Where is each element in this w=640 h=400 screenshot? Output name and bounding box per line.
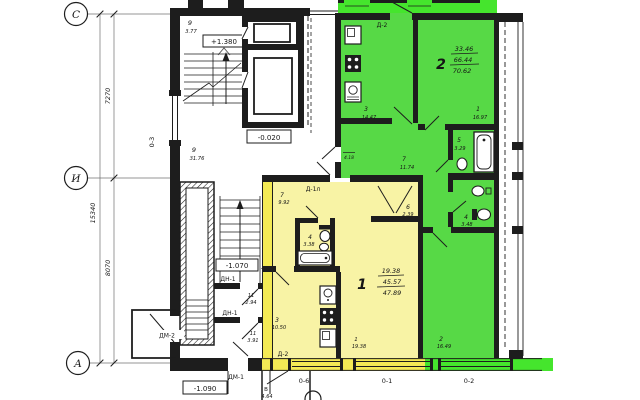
grid-label-a: А: [73, 358, 82, 370]
grid-label-i: И: [70, 173, 81, 185]
window-label-o2: 0-2: [464, 377, 475, 385]
apt2-bed-number: 2: [439, 336, 443, 343]
washbasin-icon: [320, 243, 329, 251]
apt1-balcony-area: 4.64: [261, 394, 272, 400]
elevator-shafts: [242, 16, 311, 133]
wc-sink-icon: [472, 186, 484, 196]
floor-plan-canvas: С И А 15340 7270 8070 0-3 9 3.77 +1.380: [0, 0, 640, 400]
window-label-o1: 0-1: [382, 377, 393, 385]
stair-room-area: 3.77: [185, 29, 197, 35]
stove-icon: [320, 308, 336, 325]
window-label-o6: 0-6: [299, 377, 310, 385]
apt2-bed-area: 16.49: [437, 344, 451, 350]
apt2-bath-area: 3.29: [454, 146, 465, 152]
apt2-loggia-area: 4.18: [344, 155, 354, 161]
toilet-icon: [319, 225, 331, 230]
apt1-hall-number: 7: [280, 192, 284, 199]
apt1-kitchen-fixtures: [320, 286, 336, 347]
apt2-living-area: 33.46: [455, 45, 474, 53]
apt1-living-area: 19.38: [382, 267, 401, 275]
door-label-dn1-upper: ДН-1: [220, 276, 235, 283]
door-label-dm1: ДМ-1: [228, 374, 244, 381]
apt1-hall-area: 9.92: [278, 200, 289, 206]
corridor-number: 9: [192, 146, 196, 154]
apt1-bath-number: 4: [308, 234, 312, 241]
sink-icon: [345, 82, 361, 102]
apt2-living-number: 1: [476, 106, 480, 113]
apt2-total-area: 66.44: [454, 56, 473, 64]
dim-total: 15340: [89, 203, 97, 224]
stair-room-number: 9: [188, 19, 192, 27]
washbasin-icon: [457, 158, 467, 170]
apt1-total-area: 45.57: [383, 278, 402, 286]
apt2-wc-number: 4: [464, 214, 468, 221]
tambour2-number: 11: [250, 331, 257, 337]
door-label-dm2: ДМ-2: [159, 333, 175, 340]
apt2-kitchen-area: 14.47: [362, 115, 377, 121]
apt1-room-number: 1: [354, 337, 358, 343]
window-label-o3: 0-3: [148, 137, 156, 148]
apt2-hall-area: 11.74: [400, 165, 414, 171]
toilet-icon: [472, 209, 477, 220]
level-upper-landing: +1.380: [211, 38, 237, 46]
apt1-kitchen-number: 3: [275, 317, 279, 324]
tambour1-number: 11: [248, 293, 255, 299]
grid-label-c: С: [72, 9, 80, 21]
apt2-overall-area: 70.62: [453, 67, 472, 75]
tambour2-area: 3.91: [247, 338, 258, 344]
elevator-cab-2: [254, 58, 292, 114]
apt2-wc-area: 3.48: [461, 222, 472, 228]
apt2-kitchen-number: 3: [364, 106, 368, 113]
level-exit: -1.090: [194, 385, 217, 393]
dim-lower: 8070: [104, 260, 112, 277]
apt1-kitchen-area: 10.50: [272, 325, 286, 331]
apt2-living-room-area: 16.97: [473, 115, 488, 121]
apt1-room-area: 19.38: [352, 344, 366, 350]
apt1-overall-area: 47.89: [383, 289, 402, 297]
level-lower-landing: -1.070: [226, 262, 249, 270]
apt1-balcony-label: В: [264, 387, 268, 393]
door-label-d2-bottom: Д-2: [278, 351, 289, 358]
apt2-bath-number: 5: [457, 137, 461, 144]
stove-icon: [345, 55, 361, 72]
door-label-d1l: Д-1л: [306, 186, 321, 193]
apt1-number: 1: [357, 277, 367, 293]
dim-upper: 7270: [104, 88, 112, 105]
apt1-bath-area: 3.38: [303, 242, 314, 248]
tambour1-area: 2.94: [245, 300, 256, 306]
door-label-d2-top: Д-2: [377, 22, 388, 29]
apt2-hall-number: 7: [402, 156, 406, 163]
apt1-closet-number: 6: [406, 204, 410, 211]
floor-plan-drawing: С И А 15340 7270 8070 0-3 9 3.77 +1.380: [0, 0, 640, 400]
apt1-closet-area: 2.39: [402, 212, 413, 218]
apt2-kitchen-fixtures: [345, 26, 361, 102]
level-entry-landing: -0.020: [258, 134, 281, 142]
bottom-exterior-wall: [170, 358, 553, 371]
apt2-number: 2: [436, 57, 446, 73]
elevator-cab-1: [254, 24, 290, 42]
door-label-dn1-lower: ДН-1: [222, 310, 237, 317]
corridor-area: 31.76: [190, 156, 206, 162]
